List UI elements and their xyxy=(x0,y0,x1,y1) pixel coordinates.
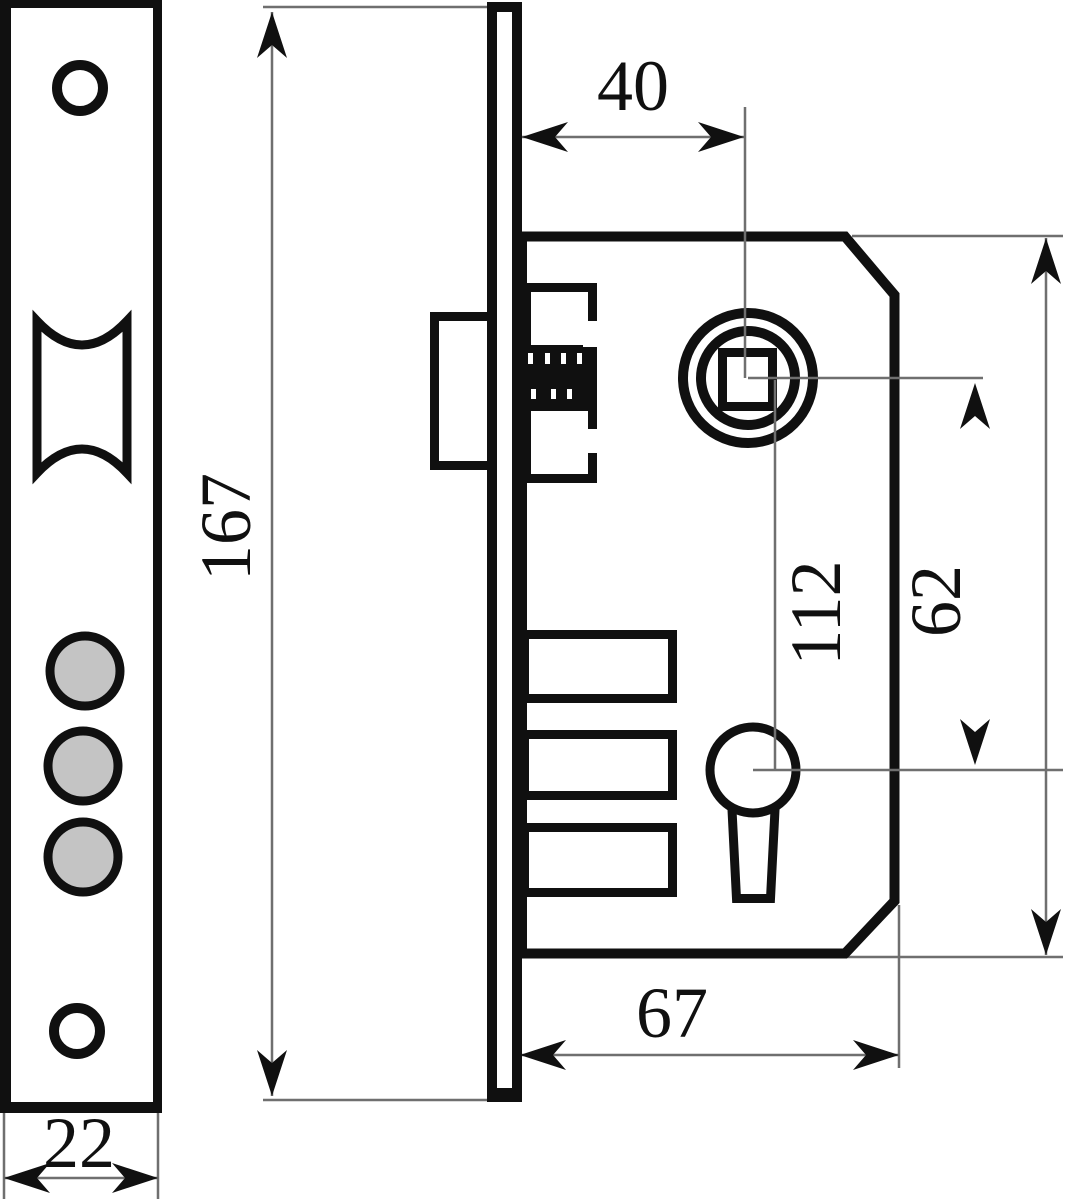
arrow-62-down xyxy=(960,719,990,765)
dim-label-faceplate-width: 22 xyxy=(43,1103,115,1183)
lock-case-side-view xyxy=(435,2,895,1102)
faceplate-front-view xyxy=(0,0,162,1113)
roller-circle-2 xyxy=(48,731,118,801)
latch-spring-assembly xyxy=(522,288,601,479)
screw-hole-bottom xyxy=(54,1008,100,1054)
latch-bolt xyxy=(435,317,493,466)
roller-circle-1 xyxy=(50,636,120,706)
deadbolt-plate-3 xyxy=(525,828,673,893)
housing-notch-top xyxy=(583,321,601,347)
deadbolt-stack xyxy=(525,635,673,893)
lock-technical-drawing: 40 167 112 62 67 22 xyxy=(0,0,1069,1200)
dim-label-case-depth: 67 xyxy=(636,973,708,1053)
spindle-square-hole xyxy=(723,353,773,407)
arrow-62-up xyxy=(960,383,990,429)
faceplate-face xyxy=(11,8,153,1102)
latch-cutout xyxy=(37,321,127,473)
deadbolt-plate-1 xyxy=(525,635,673,699)
dim-label-backset: 40 xyxy=(597,46,669,126)
dim-label-case-height: 112 xyxy=(776,560,856,665)
roller-circle-3 xyxy=(48,822,118,892)
screw-hole-top xyxy=(57,65,103,111)
deadbolt-plate-2 xyxy=(525,735,673,796)
faceplate-edge-gap xyxy=(497,12,512,1088)
dim-label-faceplate-height: 167 xyxy=(186,473,266,581)
dim-label-spindle-to-keyhole: 62 xyxy=(896,565,976,637)
housing-notch-bottom xyxy=(578,429,601,453)
faceplate-edge-view xyxy=(487,2,522,1102)
